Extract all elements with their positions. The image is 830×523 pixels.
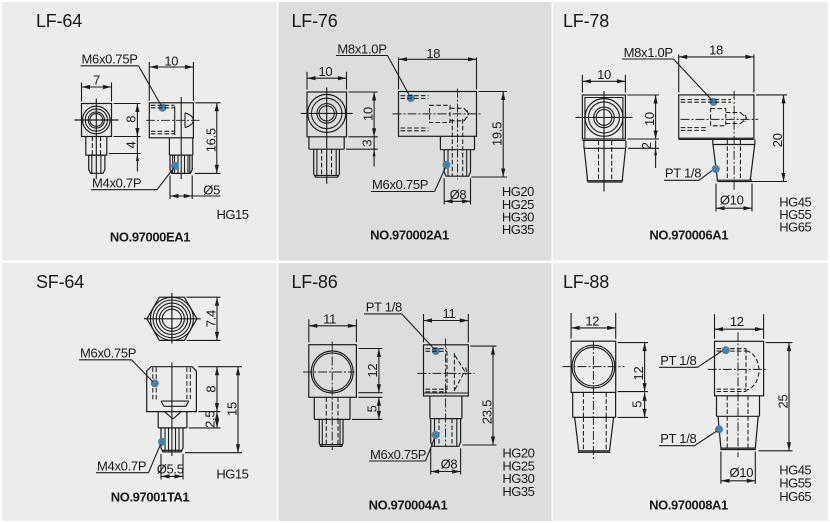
svg-text:Ø8: Ø8 bbox=[450, 187, 467, 202]
svg-text:19.5: 19.5 bbox=[490, 122, 505, 146]
svg-text:10: 10 bbox=[360, 107, 375, 121]
svg-text:LF-64: LF-64 bbox=[36, 11, 82, 31]
svg-text:10: 10 bbox=[597, 67, 611, 82]
svg-text:Ø8: Ø8 bbox=[441, 456, 458, 471]
svg-text:PT 1/8: PT 1/8 bbox=[366, 299, 402, 314]
svg-text:HG35: HG35 bbox=[502, 222, 534, 237]
svg-text:Ø10: Ø10 bbox=[729, 465, 753, 480]
svg-text:HG15: HG15 bbox=[216, 467, 248, 482]
svg-text:NO.97000EA1: NO.97000EA1 bbox=[110, 230, 190, 245]
svg-text:18: 18 bbox=[426, 46, 440, 61]
svg-text:Ø10: Ø10 bbox=[720, 192, 744, 207]
svg-text:M8x1.0P: M8x1.0P bbox=[624, 45, 673, 60]
svg-text:8: 8 bbox=[124, 116, 139, 123]
svg-text:2: 2 bbox=[639, 142, 654, 149]
svg-text:12: 12 bbox=[631, 367, 646, 381]
svg-text:PT 1/8: PT 1/8 bbox=[660, 353, 696, 368]
svg-text:PT 1/8: PT 1/8 bbox=[665, 165, 701, 180]
svg-text:NO.970006A1: NO.970006A1 bbox=[649, 228, 728, 243]
svg-text:4: 4 bbox=[124, 141, 139, 148]
svg-text:16.5: 16.5 bbox=[203, 128, 218, 152]
svg-text:SF-64: SF-64 bbox=[36, 272, 84, 292]
svg-text:2.5: 2.5 bbox=[203, 411, 218, 428]
svg-text:HG65: HG65 bbox=[779, 489, 811, 504]
svg-text:7: 7 bbox=[93, 72, 100, 87]
svg-text:LF-86: LF-86 bbox=[292, 272, 338, 292]
svg-text:HG65: HG65 bbox=[779, 220, 811, 235]
svg-text:PT 1/8: PT 1/8 bbox=[660, 431, 696, 446]
svg-text:12: 12 bbox=[365, 364, 380, 378]
svg-text:M6x0.75P: M6x0.75P bbox=[80, 346, 136, 361]
svg-text:M6x0.75P: M6x0.75P bbox=[372, 177, 428, 192]
svg-text:18: 18 bbox=[709, 42, 723, 57]
svg-text:7.4: 7.4 bbox=[204, 310, 219, 327]
svg-text:HG15: HG15 bbox=[217, 207, 249, 222]
svg-text:HG35: HG35 bbox=[502, 484, 534, 499]
svg-text:25: 25 bbox=[776, 395, 791, 409]
svg-text:20: 20 bbox=[770, 133, 785, 147]
svg-text:LF-78: LF-78 bbox=[563, 11, 609, 31]
svg-text:3: 3 bbox=[360, 140, 375, 147]
svg-text:M6x0.75P: M6x0.75P bbox=[82, 52, 138, 67]
svg-text:23.5: 23.5 bbox=[480, 400, 495, 424]
svg-text:10: 10 bbox=[642, 112, 657, 126]
svg-text:M8x1.0P: M8x1.0P bbox=[337, 41, 386, 56]
svg-text:NO.970004A1: NO.970004A1 bbox=[369, 497, 448, 512]
svg-text:10: 10 bbox=[318, 64, 332, 79]
svg-text:12: 12 bbox=[730, 314, 744, 329]
svg-text:M4x0.7P: M4x0.7P bbox=[97, 459, 146, 474]
svg-text:NO.970002A1: NO.970002A1 bbox=[370, 228, 449, 243]
svg-text:LF-88: LF-88 bbox=[563, 272, 609, 292]
svg-text:M6x0.75P: M6x0.75P bbox=[370, 447, 426, 462]
svg-text:10: 10 bbox=[164, 53, 178, 68]
svg-text:M4x0.7P: M4x0.7P bbox=[92, 176, 141, 191]
svg-text:5: 5 bbox=[364, 405, 379, 412]
svg-text:NO.970008A1: NO.970008A1 bbox=[649, 498, 728, 513]
svg-text:12: 12 bbox=[585, 313, 599, 328]
svg-text:11: 11 bbox=[443, 306, 456, 321]
svg-text:15: 15 bbox=[225, 402, 240, 416]
svg-text:Ø5: Ø5 bbox=[203, 182, 220, 197]
svg-text:11: 11 bbox=[323, 311, 336, 326]
svg-text:NO.97001TA1: NO.97001TA1 bbox=[111, 490, 190, 505]
svg-text:Ø5.5: Ø5.5 bbox=[157, 462, 184, 477]
svg-text:5: 5 bbox=[630, 401, 645, 408]
svg-text:LF-76: LF-76 bbox=[292, 11, 338, 31]
svg-text:8: 8 bbox=[204, 386, 219, 393]
